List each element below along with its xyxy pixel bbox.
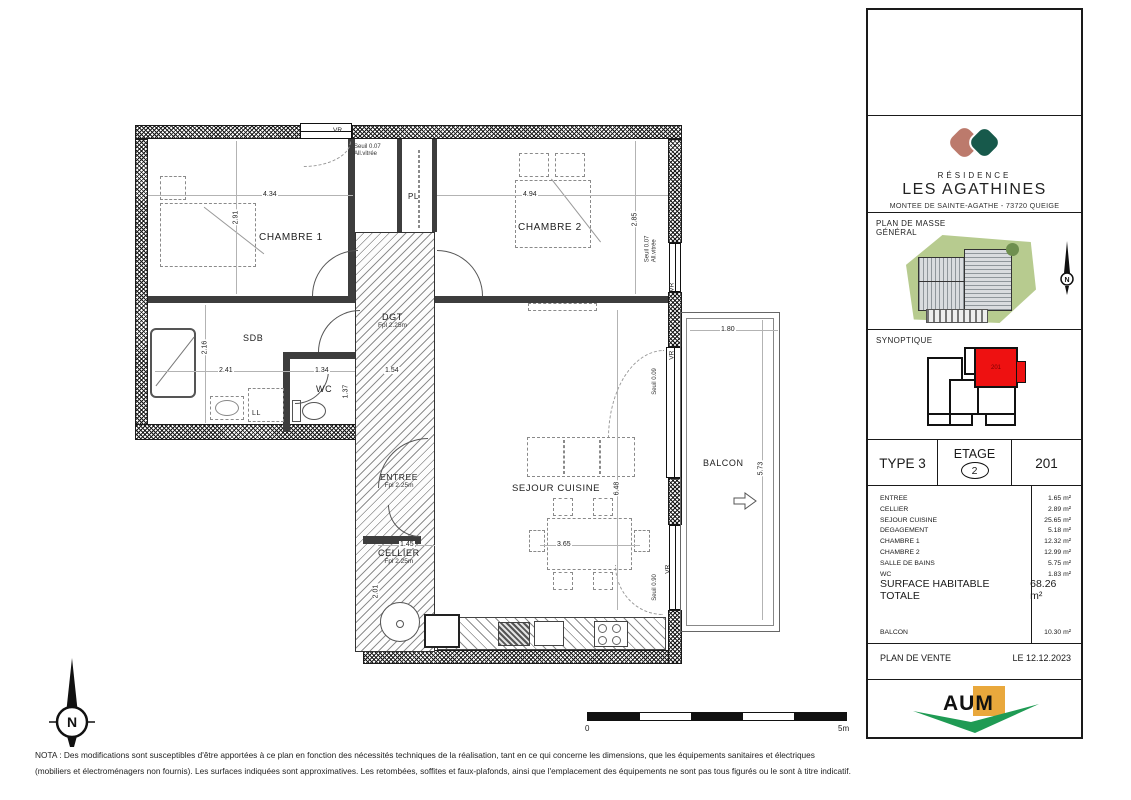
wall-chambre1-bottom (148, 296, 355, 303)
dim-cellier-h: 2.01 (372, 584, 379, 600)
scale-bar (587, 712, 847, 721)
scale-zero-label: 0 (585, 724, 589, 733)
wall-top-right (352, 125, 682, 139)
water-heater-valve (396, 620, 404, 628)
syn-tab-3 (985, 413, 1016, 426)
dim-wc-h: 1.37 (342, 384, 349, 400)
label-sdb: SDB (243, 333, 263, 343)
unit-id-row: TYPE 3 ETAGE 2 201 (868, 439, 1081, 486)
masse-label-1: PLAN DE MASSE (876, 219, 946, 228)
svg-text:N: N (1064, 277, 1069, 284)
dimline-table-h (540, 545, 640, 546)
dim-wc-w: 1.34 (314, 367, 330, 374)
site-building-left-wing (918, 257, 966, 311)
label-sejour: SEJOUR CUISINE (512, 483, 600, 494)
area-value: 5.75 m² (1021, 559, 1071, 570)
chair-5 (529, 530, 545, 552)
area-value: 5.18 m² (1021, 526, 1071, 537)
scale-seg-1 (588, 713, 640, 720)
scale-seg-4 (743, 713, 795, 720)
balcon-label: BALCON (880, 629, 908, 636)
area-row-degagement: DEGAGEMENT5.18 m² (868, 526, 1081, 537)
areas-divider (1031, 486, 1032, 644)
dimline-sdb-v (205, 305, 206, 423)
kitchen-oven (498, 622, 530, 646)
note-seuil-top-1: Seuil 0.07 (354, 144, 381, 151)
tag-vr-sejour: VR (665, 565, 672, 574)
wall-wc-left (283, 352, 290, 432)
label-dgt-sub: Fpl 2.25m (378, 322, 407, 329)
dimline-ch1 (148, 195, 353, 196)
area-value: 25.65 m² (1021, 516, 1071, 527)
north-compass-icon: N (46, 656, 98, 748)
area-value: 12.99 m² (1021, 548, 1071, 559)
unit-etage-cell: ETAGE 2 (938, 440, 1012, 486)
wall-top-left (135, 125, 301, 139)
washing-machine-cellier (424, 614, 460, 648)
nightstand-chambre1 (160, 176, 186, 200)
sofa-seat-line-1 (563, 440, 565, 474)
aum-wordmark: AUM (943, 692, 994, 716)
label-lave-linge: LL (252, 410, 261, 417)
note-seuil-top-2: All.vitrée (354, 151, 381, 158)
label-cellier: CELLIER Fpl 2.25m (378, 548, 420, 565)
syn-tab-1 (927, 413, 951, 426)
note-seuil-balcony: Seuil 0.09 (652, 368, 659, 395)
aum-logo-section: AUM (868, 679, 1081, 738)
door-sdb (318, 310, 360, 352)
title-block: RÉSIDENCE LES AGATHINES MONTEE DE SAINTE… (866, 8, 1083, 739)
area-label: DEGAGEMENT (880, 526, 928, 537)
syn-unit-201: 201 (974, 347, 1018, 388)
unit-type: TYPE 3 (879, 456, 926, 471)
wall-placard-right (432, 139, 437, 232)
syn-tab-2 (949, 413, 973, 426)
scale-seg-2 (640, 713, 692, 720)
note-seuil-sejour: Seuil 0.90 (652, 574, 659, 601)
total-row: SURFACE HABITABLE TOTALE 68.26 m² (868, 578, 1081, 602)
brand-section: RÉSIDENCE LES AGATHINES MONTEE DE SAINTE… (868, 115, 1081, 213)
balcon-row: BALCON 10.30 m² (868, 629, 1081, 636)
wall-sejour-top (435, 296, 668, 303)
label-cellier-title: CELLIER (378, 548, 420, 558)
toilet-tank (292, 400, 301, 422)
dim-ch1-w: 4.34 (262, 191, 278, 198)
wall-placard-left (397, 139, 402, 232)
site-building-right-wing (964, 249, 1012, 311)
note-seuil-ch2-1: Seuil 0.07 (644, 236, 651, 263)
tag-vr-balcony-door: VR (669, 351, 676, 360)
dim-ch1-h: 2.91 (232, 210, 239, 226)
area-label: SALLE DE BAINS (880, 559, 935, 570)
window-swing-top (303, 141, 351, 167)
nota-disclaimer: NOTA : Des modifications sont susceptibl… (35, 748, 1110, 780)
total-value: 68.26 m² (1030, 578, 1071, 602)
dim-ch2-h: 2.85 (631, 212, 638, 228)
area-row-sdb: SALLE DE BAINS5.75 m² (868, 559, 1081, 570)
window-vr-top (300, 123, 352, 139)
chair-4 (593, 572, 613, 590)
unit-type-cell: TYPE 3 (868, 440, 938, 486)
sofa-seat-line-2 (599, 440, 601, 474)
area-row-entree: ENTREE1.65 m² (868, 494, 1081, 505)
scale-end-label: 5m (838, 724, 849, 733)
nightstand-chambre2-b (555, 153, 585, 177)
area-label: SEJOUR CUISINE (880, 516, 937, 527)
area-row-chambre2: CHAMBRE 212.99 m² (868, 548, 1081, 559)
wall-left (135, 139, 148, 440)
label-chambre2: CHAMBRE 2 (518, 222, 582, 233)
dim-dgt-w: 1.54 (384, 367, 400, 374)
site-plan-thumbnail (906, 235, 1036, 323)
balcony-exit-arrow-icon (733, 492, 757, 510)
hob-burner-1 (598, 624, 607, 633)
agathines-logo-icon (944, 120, 1006, 166)
wall-wc-top (283, 352, 355, 359)
hob-burner-4 (612, 636, 621, 645)
total-label: SURFACE HABITABLE TOTALE (880, 578, 1030, 602)
dim-cellier-w: 1.45 (399, 541, 415, 548)
hob-burner-2 (612, 624, 621, 633)
brand-address: MONTEE DE SAINTE-AGATHE - 73720 QUEIGE (868, 201, 1081, 210)
label-dgt-title: DGT (378, 312, 407, 322)
chair-6 (634, 530, 650, 552)
wall-right-1 (668, 139, 682, 243)
chair-2 (593, 498, 613, 516)
brand-residence: RÉSIDENCE (868, 171, 1081, 180)
door-chambre2 (437, 250, 483, 296)
synoptique-thumbnail: 201 (892, 344, 1062, 432)
brand-name: LES AGATHINES (868, 181, 1081, 199)
label-wc: WC (316, 384, 332, 394)
dim-sdb-w: 2.41 (218, 367, 234, 374)
kitchen-sink (534, 621, 564, 646)
label-entree-sub: Fpl 2.25m (380, 482, 418, 489)
lintel-dashed (528, 303, 597, 311)
doc-type-label: PLAN DE VENTE (880, 653, 951, 663)
dim-sdb-h: 2.16 (201, 340, 208, 356)
area-value: 2.89 m² (1021, 505, 1071, 516)
tag-vr-ch2: VR (669, 283, 676, 292)
toilet-bowl (302, 402, 326, 420)
syn-unit-tab (1016, 361, 1026, 383)
etage-number: 2 (961, 462, 989, 479)
label-entree: ENTREE Fpl 2.25m (380, 472, 418, 489)
areas-section: ENTREE1.65 m² CELLIER2.89 m² SEJOUR CUIS… (868, 485, 1081, 644)
label-chambre1: CHAMBRE 1 (259, 232, 323, 243)
hob-burner-3 (598, 636, 607, 645)
label-dgt: DGT Fpl 2.25m (378, 312, 407, 329)
dim-balcon-h: 5.73 (757, 461, 764, 477)
site-north-icon: N (1060, 241, 1074, 297)
plan-de-vente-document: 4.34 2.91 4.94 2.85 2.16 2.41 1.34 1.37 … (0, 0, 1131, 800)
dimline-ch2 (437, 195, 668, 196)
dim-table-w: 3.65 (556, 541, 572, 548)
title-block-empty-cell (868, 10, 1081, 115)
tag-vr-top: VR (333, 128, 342, 135)
site-driveway (926, 309, 988, 323)
nightstand-chambre2-a (519, 153, 549, 177)
scale-seg-3 (691, 713, 743, 720)
label-cellier-sub: Fpl 2.25m (378, 558, 420, 565)
svg-text:N: N (67, 714, 77, 730)
dimline-sejour-v (617, 310, 618, 610)
chair-1 (553, 498, 573, 516)
area-row-cellier: CELLIER2.89 m² (868, 505, 1081, 516)
washbasin-bowl (215, 400, 239, 416)
site-roof-ridge (918, 281, 964, 282)
note-seuil-top: Seuil 0.07 All.vitrée (354, 144, 381, 158)
wall-bottom (363, 650, 682, 664)
note-seuil-ch2-2: All.vitrée (651, 236, 658, 263)
area-value: 1.65 m² (1021, 494, 1071, 505)
area-label: CHAMBRE 2 (880, 548, 920, 559)
placard-sliding-door (418, 150, 420, 228)
unit-number-cell: 201 (1012, 440, 1081, 486)
synoptique-section: SYNOPTIQUE 201 (868, 329, 1081, 440)
area-label: CELLIER (880, 505, 908, 516)
unit-number: 201 (1035, 456, 1058, 471)
nota-line-1: NOTA : Des modifications sont susceptibl… (35, 748, 1110, 764)
label-placard: PL (408, 192, 419, 201)
wall-bottom-sdb (135, 424, 363, 440)
note-seuil-ch2: Seuil 0.07 All.vitrée (644, 236, 658, 263)
door-chambre1 (312, 250, 358, 296)
label-balcon: BALCON (703, 458, 744, 468)
site-tree (1006, 243, 1019, 256)
doc-type-row: PLAN DE VENTE LE 12.12.2023 (868, 643, 1081, 680)
label-entree-title: ENTREE (380, 472, 418, 482)
area-label: CHAMBRE 1 (880, 537, 920, 548)
dim-ch2-w: 4.94 (522, 191, 538, 198)
chair-3 (553, 572, 573, 590)
nota-line-2: (mobiliers et électroménagers non fourni… (35, 764, 1110, 780)
sofa (527, 437, 635, 477)
dim-balcon-w: 1.80 (720, 326, 736, 333)
area-value: 12.32 m² (1021, 537, 1071, 548)
scale-seg-5 (794, 713, 846, 720)
balcon-value: 10.30 m² (1044, 629, 1071, 636)
floor-plan: 4.34 2.91 4.94 2.85 2.16 2.41 1.34 1.37 … (0, 0, 866, 800)
plan-masse-section: PLAN DE MASSE GÉNÉRAL N (868, 212, 1081, 330)
area-label: ENTREE (880, 494, 908, 505)
area-row-sejour: SEJOUR CUISINE25.65 m² (868, 516, 1081, 527)
doc-date: LE 12.12.2023 (1012, 653, 1071, 663)
area-row-chambre1: CHAMBRE 112.32 m² (868, 537, 1081, 548)
etage-label: ETAGE (954, 447, 995, 461)
syn-unit-201-label: 201 (991, 365, 1001, 371)
dim-sejour-h: 6.48 (613, 481, 620, 497)
